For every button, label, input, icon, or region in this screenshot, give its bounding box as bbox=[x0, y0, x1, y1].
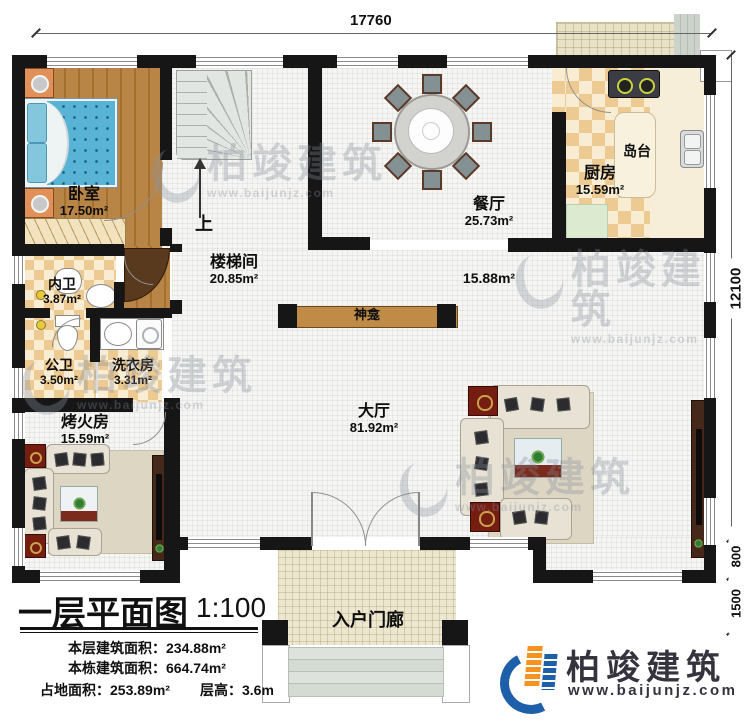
island-label: 岛台 bbox=[623, 144, 651, 160]
room-area: 3.87m² bbox=[43, 293, 81, 306]
stairwell-label: 楼梯间 20.85m² bbox=[210, 254, 258, 286]
bed-pillow bbox=[27, 103, 47, 143]
sofa-cushion bbox=[530, 397, 545, 412]
window bbox=[447, 55, 528, 68]
tv-icon bbox=[696, 429, 702, 525]
room-name: 烤火房 bbox=[61, 414, 109, 432]
room-name: 入户门廊 bbox=[332, 610, 404, 630]
wall bbox=[90, 318, 100, 362]
dining-chair bbox=[422, 74, 442, 94]
shrine-label: 神龛 bbox=[354, 308, 380, 323]
room-name: 厨房 bbox=[576, 165, 624, 183]
window bbox=[188, 537, 260, 550]
wall bbox=[114, 282, 124, 310]
floor-area-line: 本层建筑面积：234.88m² bbox=[68, 638, 226, 658]
room-name: 洗衣房 bbox=[112, 358, 154, 374]
sofa bbox=[490, 385, 590, 429]
stair-direction-arrow bbox=[199, 168, 201, 218]
dimension-line-top bbox=[35, 33, 713, 34]
window bbox=[704, 95, 716, 188]
sofa-cushion bbox=[56, 535, 71, 550]
kitchen-label: 厨房 15.59m² bbox=[576, 165, 624, 197]
burner-icon bbox=[639, 78, 655, 94]
washer-door-icon bbox=[142, 327, 159, 344]
window bbox=[12, 256, 25, 284]
building-area-line: 本栋建筑面积：664.74m² bbox=[68, 658, 226, 678]
window bbox=[40, 570, 140, 583]
coffee-table bbox=[514, 438, 562, 478]
side-table bbox=[22, 534, 46, 558]
wall bbox=[160, 55, 172, 160]
sofa-cushion bbox=[90, 452, 104, 466]
shrine-post bbox=[278, 304, 297, 328]
room-area: 15.88m² bbox=[463, 271, 515, 287]
room-area: 17.50m² bbox=[60, 204, 108, 219]
height-line: 层高：3.6m bbox=[200, 680, 274, 700]
porch-floor bbox=[278, 550, 456, 645]
bed-pillow bbox=[27, 143, 47, 183]
room-name: 卧室 bbox=[60, 186, 108, 204]
laundry-label: 洗衣房 3.31m² bbox=[112, 358, 154, 387]
hall-label: 大厅 81.92m² bbox=[350, 403, 398, 435]
dining-chair bbox=[422, 170, 442, 190]
dimension-top-value: 17760 bbox=[347, 12, 395, 29]
wall bbox=[170, 244, 182, 252]
wall bbox=[12, 55, 25, 583]
wall bbox=[552, 55, 566, 68]
room-area: 15.59m² bbox=[61, 432, 109, 447]
up-text: 上 bbox=[195, 214, 213, 234]
side-table bbox=[470, 502, 500, 532]
sofa-cushion bbox=[504, 397, 519, 412]
side-table bbox=[22, 444, 46, 468]
plant-icon bbox=[155, 544, 164, 553]
stove bbox=[608, 70, 660, 98]
dining-label: 餐厅 25.73m² bbox=[465, 196, 513, 228]
window bbox=[704, 498, 716, 545]
window bbox=[337, 55, 398, 68]
burner-icon bbox=[617, 78, 633, 94]
kitchen-sink bbox=[680, 130, 704, 168]
sofa bbox=[48, 528, 102, 556]
wall bbox=[508, 238, 716, 252]
wall bbox=[86, 308, 172, 318]
dimension-right-value: 12100 bbox=[728, 259, 745, 319]
kitchen-mat bbox=[566, 204, 608, 239]
wardrobe bbox=[24, 218, 126, 246]
sofa bbox=[500, 498, 572, 540]
wall bbox=[164, 398, 180, 583]
bathroom-sink bbox=[86, 284, 116, 308]
wall bbox=[12, 308, 50, 318]
wall bbox=[260, 537, 312, 550]
dining-chair bbox=[472, 122, 492, 142]
fire-room-label: 烤火房 15.59m² bbox=[61, 414, 109, 446]
sofa-cushion bbox=[32, 516, 46, 530]
sink-basin bbox=[684, 134, 701, 149]
plan-scale: 1:100 bbox=[196, 592, 266, 624]
plant-icon bbox=[694, 539, 703, 548]
porch-label: 入户门廊 bbox=[332, 610, 404, 630]
sofa-cushion bbox=[474, 456, 489, 471]
lazy-susan bbox=[422, 122, 440, 140]
lamp-icon bbox=[31, 75, 49, 93]
sofa-cushion bbox=[474, 482, 488, 496]
hall-floor bbox=[172, 250, 704, 537]
title-rule-thin bbox=[20, 632, 258, 633]
sink-basin bbox=[684, 150, 701, 165]
window bbox=[12, 528, 25, 566]
sofa-cushion bbox=[72, 452, 86, 466]
plant-icon bbox=[531, 450, 545, 464]
porch-step bbox=[288, 683, 444, 697]
room-area: 81.92m² bbox=[350, 421, 398, 436]
sofa bbox=[46, 444, 110, 474]
room-name: 楼梯间 bbox=[210, 254, 258, 272]
laundry-sink bbox=[104, 322, 132, 346]
hall-subarea-label: 15.88m² bbox=[463, 271, 515, 287]
room-name: 公卫 bbox=[40, 358, 78, 374]
window bbox=[470, 537, 528, 550]
window bbox=[704, 253, 716, 302]
dimension-porch-value: 1500 bbox=[729, 574, 744, 634]
nightstand bbox=[24, 68, 54, 98]
company-logo: 柏竣建筑 www.baijunjz.com bbox=[496, 640, 746, 708]
logo-url-text: www.baijunjz.com bbox=[568, 682, 737, 699]
stair-arrowhead-icon bbox=[194, 158, 206, 169]
room-name: 岛台 bbox=[623, 144, 651, 160]
porch-pillar bbox=[442, 620, 468, 645]
window bbox=[196, 55, 283, 68]
porch-column-base bbox=[442, 645, 470, 703]
room-area: 15.59m² bbox=[576, 183, 624, 198]
window bbox=[593, 570, 682, 583]
bedroom-label: 卧室 17.50m² bbox=[60, 186, 108, 218]
room-name: 内卫 bbox=[43, 277, 81, 293]
room-area: 20.85m² bbox=[210, 272, 258, 287]
room-name: 大厅 bbox=[350, 403, 398, 421]
sofa-cushion bbox=[76, 535, 91, 550]
lamp-icon bbox=[31, 195, 49, 213]
plant-icon bbox=[73, 497, 86, 510]
wall bbox=[552, 112, 566, 238]
wall bbox=[164, 537, 188, 550]
wall bbox=[308, 55, 322, 250]
shrine-post bbox=[437, 304, 456, 328]
kitchen-door-threshold bbox=[552, 68, 566, 112]
nightstand bbox=[24, 188, 54, 218]
room-area: 3.50m² bbox=[40, 374, 78, 387]
public-bath-label: 公卫 3.50m² bbox=[40, 358, 78, 387]
sofa-cushion bbox=[556, 397, 570, 411]
inner-bath-label: 内卫 3.87m² bbox=[43, 277, 81, 306]
window bbox=[12, 368, 25, 398]
window bbox=[704, 338, 716, 398]
title-rule bbox=[20, 627, 258, 630]
tv-icon bbox=[156, 474, 162, 540]
sofa-cushion bbox=[32, 476, 47, 491]
window bbox=[47, 55, 137, 68]
floorplan-page: { "dimensions": { "top_width": "17760", … bbox=[0, 0, 750, 713]
sofa-cushion bbox=[534, 510, 548, 524]
room-area: 3.31m² bbox=[112, 374, 154, 387]
stair-straight-flight bbox=[177, 71, 207, 159]
room-area: 25.73m² bbox=[465, 214, 513, 229]
coffee-table bbox=[60, 486, 98, 522]
dining-chair bbox=[372, 122, 392, 142]
wall bbox=[308, 237, 370, 250]
side-table bbox=[468, 386, 498, 416]
sofa-cushion bbox=[474, 430, 489, 445]
washing-machine bbox=[136, 319, 162, 349]
sofa-cushion bbox=[32, 496, 46, 510]
room-name: 餐厅 bbox=[465, 196, 513, 214]
room-name: 神龛 bbox=[354, 308, 380, 323]
stairs-up-label: 上 bbox=[195, 214, 213, 234]
staircase bbox=[176, 70, 252, 160]
sofa-cushion bbox=[54, 452, 69, 467]
window bbox=[12, 413, 25, 439]
wall bbox=[114, 244, 124, 256]
wall-lamp-icon bbox=[36, 320, 46, 330]
footprint-line: 占地面积：253.89m² bbox=[40, 680, 170, 700]
wall bbox=[12, 398, 133, 412]
wall bbox=[12, 244, 124, 256]
sofa-cushion bbox=[512, 510, 527, 525]
